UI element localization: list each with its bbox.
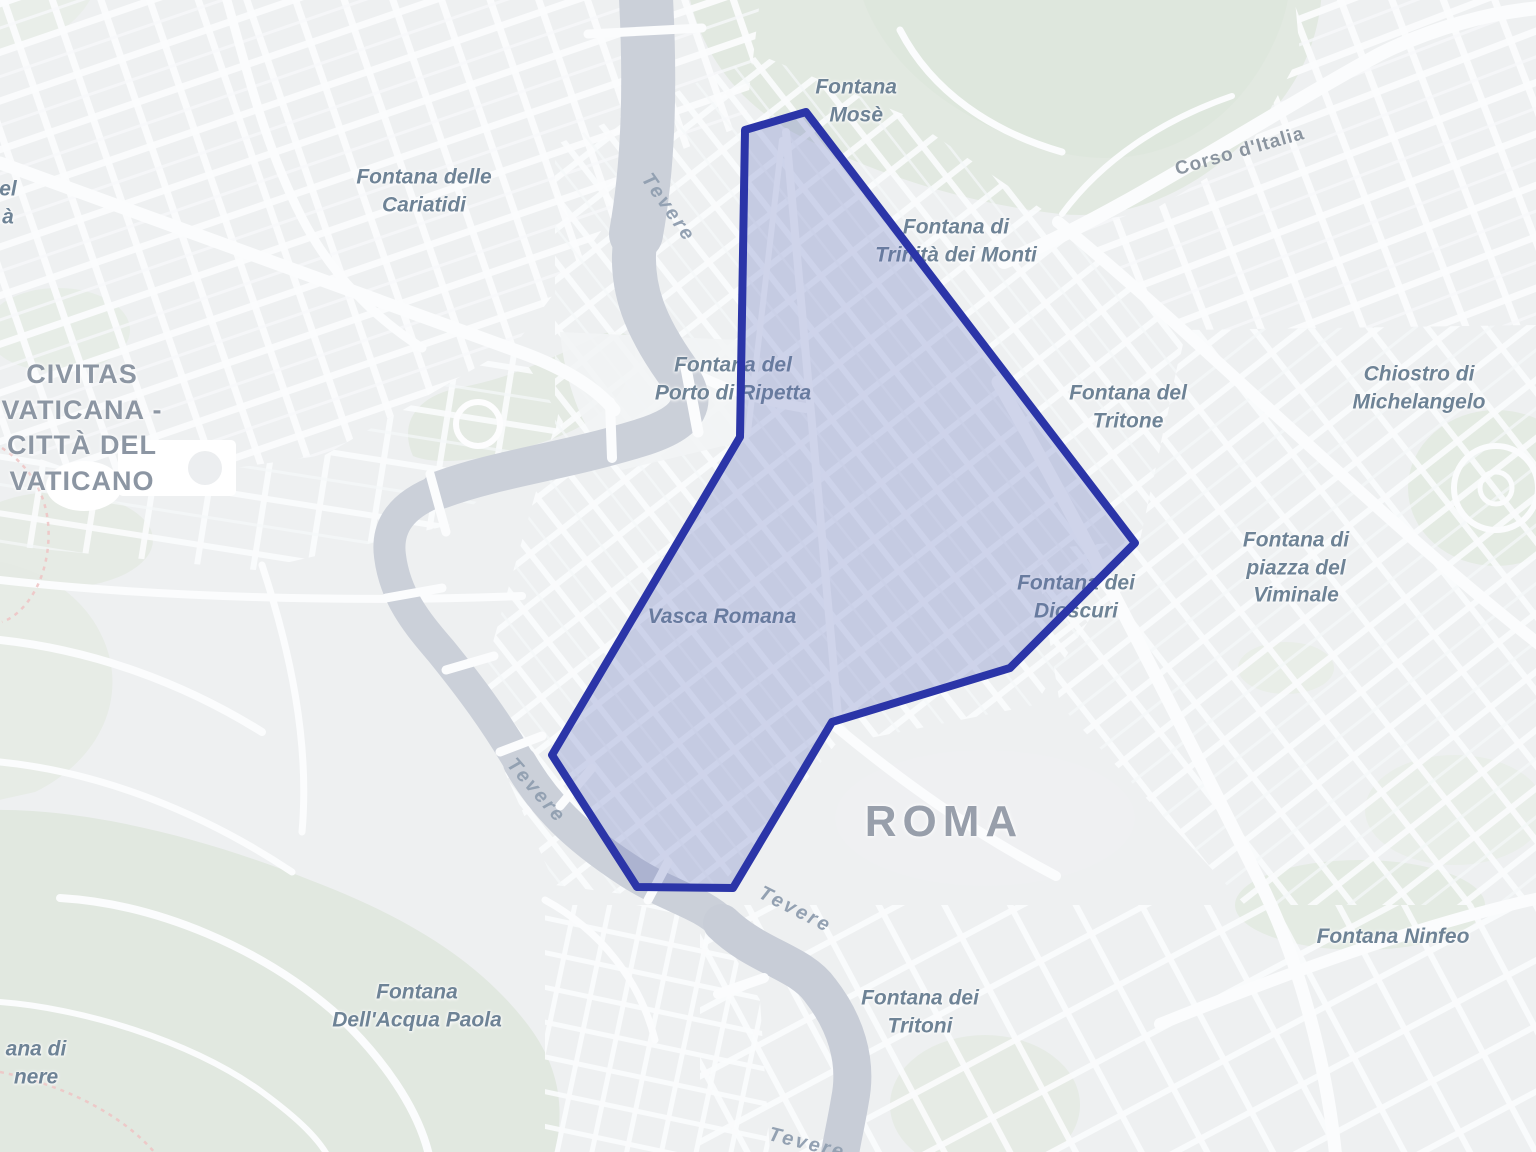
district-overlay-svg <box>0 0 1536 1152</box>
map-viewport[interactable]: Fontana delleCariatidiCIVITASVATICANA -C… <box>0 0 1536 1152</box>
district-polygon[interactable] <box>552 112 1135 888</box>
